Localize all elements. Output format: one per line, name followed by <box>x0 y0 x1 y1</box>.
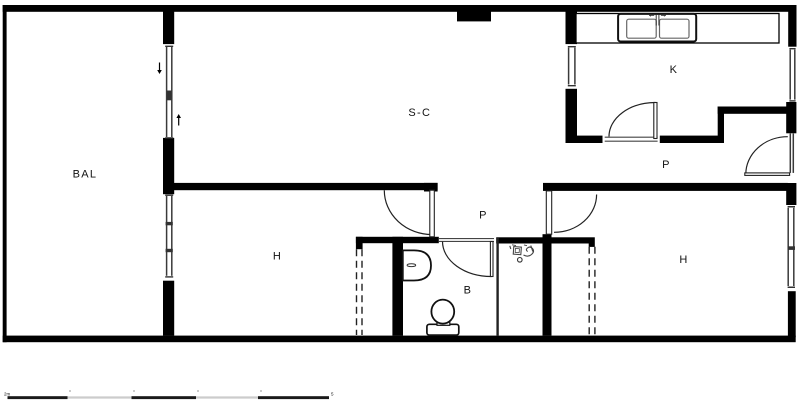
svg-text:B: B <box>464 285 473 297</box>
svg-text:BAL: BAL <box>73 169 98 181</box>
svg-text:S-C: S-C <box>408 107 431 119</box>
svg-text:P: P <box>479 210 488 222</box>
svg-text:2m: 2m <box>4 392 11 397</box>
svg-text:P: P <box>662 159 671 171</box>
svg-text:H: H <box>273 251 282 263</box>
svg-text:K: K <box>670 64 679 76</box>
svg-text:H: H <box>679 254 688 266</box>
